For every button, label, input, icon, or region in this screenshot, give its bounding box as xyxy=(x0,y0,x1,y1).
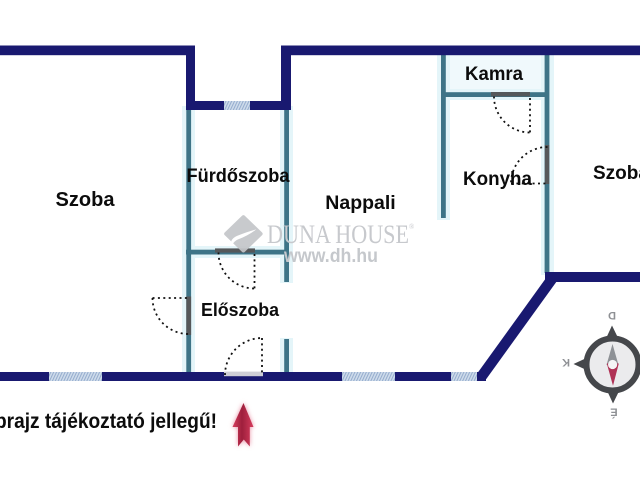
svg-text:Kamra: Kamra xyxy=(465,64,523,85)
svg-text:www.dh.hu: www.dh.hu xyxy=(283,246,378,267)
svg-text:Fürdőszoba: Fürdőszoba xyxy=(187,165,290,187)
svg-text:Előszoba: Előszoba xyxy=(201,300,280,320)
svg-text:Nappali: Nappali xyxy=(325,192,395,214)
svg-text:DUNA HOUSE: DUNA HOUSE xyxy=(267,220,409,249)
svg-text:prajz tájékoztató jellegű!: prajz tájékoztató jellegű! xyxy=(0,410,217,433)
svg-text:D: D xyxy=(608,309,616,321)
svg-text:®: ® xyxy=(409,223,415,231)
svg-text:Szoba: Szoba xyxy=(56,189,116,211)
svg-text:Konyha: Konyha xyxy=(463,169,532,190)
svg-text:Szoba: Szoba xyxy=(593,163,640,184)
svg-text:É: É xyxy=(610,406,617,419)
svg-text:K: K xyxy=(562,356,570,368)
